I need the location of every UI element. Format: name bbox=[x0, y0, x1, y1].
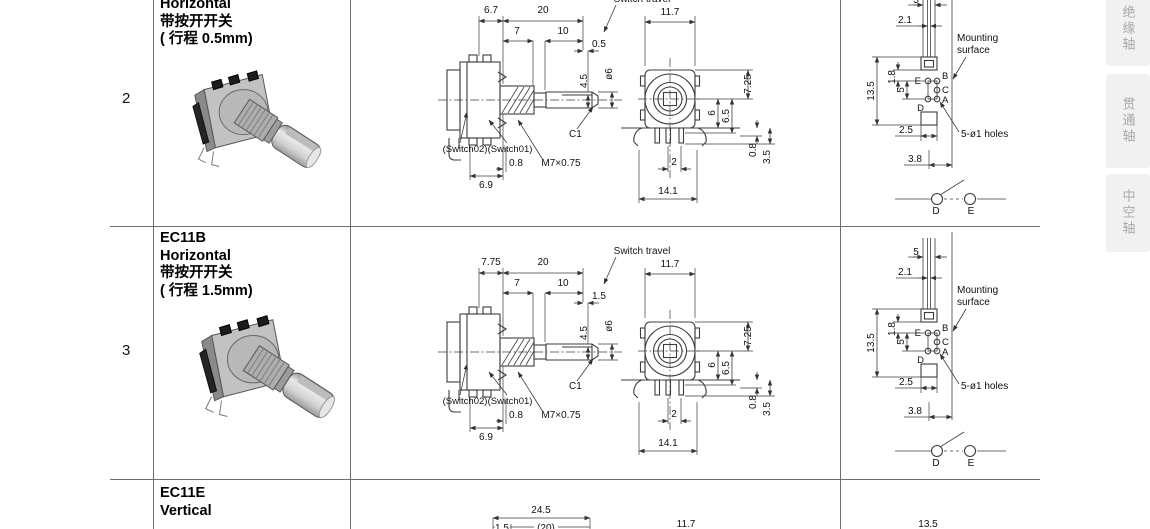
dim-label: 5 bbox=[896, 87, 907, 93]
dim-label: 7 bbox=[514, 26, 520, 37]
dim-label: 11.7 bbox=[661, 7, 680, 18]
dim-label: 4.5 bbox=[579, 326, 590, 340]
pin-label: A bbox=[942, 347, 949, 358]
title-line: EC11B bbox=[160, 230, 253, 248]
callout-label: M7×0.75 bbox=[541, 410, 581, 421]
title-line: Horizontal bbox=[160, 0, 253, 14]
dim-label: 3.5 bbox=[762, 150, 773, 164]
dim-label: 1.8 bbox=[887, 322, 898, 336]
front-view: 11.7 7.25 6 6.5 0.8 3.5 2 14.1 Switch tr… bbox=[604, 246, 775, 455]
dim-label: 4.5 bbox=[579, 74, 590, 88]
dim-label: 7.25 bbox=[743, 326, 754, 346]
dim-label: 2.5 bbox=[899, 125, 913, 136]
side-view: 6.7 20 7 10 0.5 4.5 ø6 C1 (Switch02) (Sw… bbox=[438, 5, 622, 191]
dim-label: 6.7 bbox=[484, 5, 498, 16]
callout-label: 5-ø1 holes bbox=[961, 129, 1008, 140]
pin-label: D bbox=[917, 103, 924, 114]
callout-label: 5-ø1 holes bbox=[961, 381, 1008, 392]
mounting-view: 5 2.1 Mounting surface 13.5 1.8 5 E B C … bbox=[866, 232, 1008, 469]
product-photo bbox=[182, 292, 340, 462]
dim-label: 10 bbox=[557, 26, 569, 37]
dim-label: 0.8 bbox=[748, 395, 759, 409]
row-number: 3 bbox=[122, 342, 130, 359]
callout-label: M7×0.75 bbox=[541, 158, 581, 169]
dim-label: 14.1 bbox=[658, 186, 678, 197]
pin-label: B bbox=[942, 71, 948, 82]
callout-label: C1 bbox=[569, 381, 582, 392]
dim-label: 10 bbox=[557, 278, 569, 289]
dim-label: 3.8 bbox=[908, 406, 922, 417]
dim-label: 1.5 bbox=[495, 523, 509, 529]
row-title-ec11b-15: EC11B Horizontal 带按开开关 ( 行程 1.5mm) bbox=[160, 230, 253, 300]
dim-label: (20) bbox=[537, 523, 555, 529]
mounting-view: 5 2.1 Mounting surface 13.5 1.8 5 E B C … bbox=[866, 0, 1008, 217]
catalog-page: 2 3 Horizontal 带按开开关 ( 行程 0.5mm) EC11B H… bbox=[0, 0, 1150, 529]
side-view-partial: 24.5 1.5 (20) 11.7 13.5 bbox=[493, 505, 938, 529]
title-line: 带按开开关 bbox=[160, 14, 253, 32]
pin-label: E bbox=[915, 328, 921, 339]
callout-label: Mounting bbox=[957, 285, 998, 296]
dim-label: 20 bbox=[537, 5, 549, 16]
table-border-vertical-1 bbox=[153, 0, 154, 529]
title-line: Horizontal bbox=[160, 248, 253, 266]
row-title-ec11e: EC11E Vertical bbox=[160, 485, 212, 520]
pin-label: B bbox=[942, 323, 948, 334]
switch-schematic: D E bbox=[895, 180, 1006, 217]
switch-terminal-label: D bbox=[932, 458, 939, 469]
dim-label: 11.7 bbox=[661, 259, 680, 270]
dim-label: 1.8 bbox=[887, 70, 898, 84]
callout-label: surface bbox=[957, 297, 990, 308]
tab-label: 绝缘轴 bbox=[1119, 5, 1138, 53]
title-line: EC11E bbox=[160, 485, 212, 503]
dim-label: 7.75 bbox=[481, 257, 501, 268]
callout-label: (Switch02) bbox=[443, 144, 488, 155]
row-number: 2 bbox=[122, 90, 130, 107]
tab-label: 贯通轴 bbox=[1119, 97, 1138, 145]
tab-label: 中空轴 bbox=[1119, 189, 1138, 237]
tab-through-shaft: 贯通轴 bbox=[1106, 74, 1150, 168]
switch-schematic: D E bbox=[895, 432, 1006, 469]
dim-label: 0.8 bbox=[509, 158, 523, 169]
pin-label: D bbox=[917, 355, 924, 366]
dim-label: 2.5 bbox=[899, 377, 913, 388]
encoder-illustration bbox=[200, 316, 339, 422]
dim-label: 2.1 bbox=[898, 267, 912, 278]
dim-label: 6.9 bbox=[479, 180, 493, 191]
switch-terminal-label: D bbox=[932, 206, 939, 217]
dim-label: ø6 bbox=[604, 320, 615, 332]
title-line: Vertical bbox=[160, 503, 212, 521]
callout-label: C1 bbox=[569, 129, 582, 140]
dim-label: 3.8 bbox=[908, 154, 922, 165]
dim-label: 1.5 bbox=[592, 291, 606, 302]
dim-label: 3.5 bbox=[762, 402, 773, 416]
product-photo bbox=[176, 54, 326, 204]
front-view: 11.7 7.25 6 6.5 0.8 3.5 2 14.1 Switch tr… bbox=[604, 0, 775, 203]
title-line: 带按开开关 bbox=[160, 265, 253, 283]
switch-terminal-label: E bbox=[968, 458, 975, 469]
dim-label: 6.9 bbox=[479, 432, 493, 443]
encoder-illustration bbox=[193, 71, 325, 172]
dim-label: 0.5 bbox=[592, 39, 606, 50]
dim-label: 20 bbox=[537, 257, 549, 268]
drawing-row-ec11e: 24.5 1.5 (20) 11.7 13.5 bbox=[350, 480, 1040, 529]
callout-label: (Switch01) bbox=[488, 396, 533, 407]
callout-label: Switch travel bbox=[614, 0, 671, 5]
dim-label: 6 bbox=[707, 362, 718, 368]
dim-label: 24.5 bbox=[531, 505, 551, 516]
callout-label: Mounting bbox=[957, 33, 998, 44]
dim-label: 11.7 bbox=[677, 519, 696, 529]
dim-label: 2.1 bbox=[898, 15, 912, 26]
callout-label: Switch travel bbox=[614, 246, 671, 257]
dim-label: 7.25 bbox=[743, 74, 754, 94]
pin-label: E bbox=[915, 76, 921, 87]
drawing-row-ec11b-05: 6.7 20 7 10 0.5 4.5 ø6 C1 (Switch02) (Sw… bbox=[350, 0, 1040, 226]
dim-label: 2 bbox=[671, 157, 677, 168]
callout-label: (Switch01) bbox=[488, 144, 533, 155]
drawing-row-ec11b-15: 7.75 20 7 10 1.5 4.5 ø6 C1 (Switch02) (S… bbox=[350, 227, 1040, 479]
row-title-ec11b-05: Horizontal 带按开开关 ( 行程 0.5mm) bbox=[160, 0, 253, 49]
dim-label: 14.1 bbox=[658, 438, 678, 449]
dim-label: 6.5 bbox=[721, 361, 732, 375]
callout-label: surface bbox=[957, 45, 990, 56]
dim-label: 13.5 bbox=[918, 519, 938, 529]
dim-label: 6 bbox=[707, 110, 718, 116]
dim-label: 5 bbox=[913, 247, 919, 258]
callout-label: (Switch02) bbox=[443, 396, 488, 407]
dim-label: 5 bbox=[913, 0, 919, 6]
dim-label: ø6 bbox=[604, 68, 615, 80]
dim-label: 5 bbox=[896, 339, 907, 345]
tab-hollow-shaft: 中空轴 bbox=[1106, 174, 1150, 252]
title-line: ( 行程 0.5mm) bbox=[160, 31, 253, 49]
dim-label: 6.5 bbox=[721, 109, 732, 123]
pin-label: A bbox=[942, 95, 949, 106]
dim-label: 2 bbox=[671, 409, 677, 420]
dim-label: 13.5 bbox=[866, 81, 877, 101]
side-view: 7.75 20 7 10 1.5 4.5 ø6 C1 (Switch02) (S… bbox=[438, 257, 622, 443]
tab-insulated-shaft: 绝缘轴 bbox=[1106, 0, 1150, 66]
dim-label: 0.8 bbox=[509, 410, 523, 421]
dim-label: 0.8 bbox=[748, 143, 759, 157]
switch-terminal-label: E bbox=[968, 206, 975, 217]
dim-label: 13.5 bbox=[866, 333, 877, 353]
dim-label: 7 bbox=[514, 278, 520, 289]
